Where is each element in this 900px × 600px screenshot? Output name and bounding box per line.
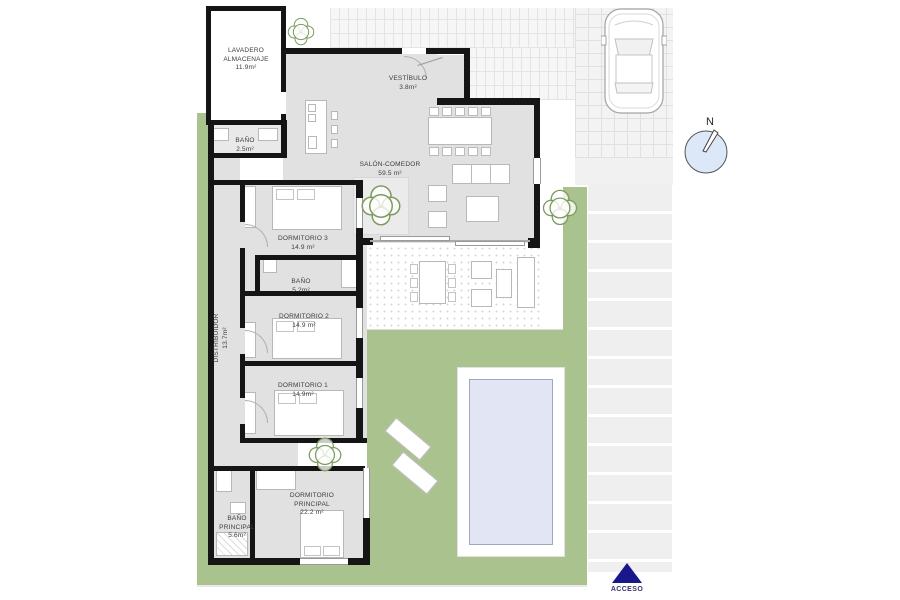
terrace-chair — [410, 264, 418, 274]
wall — [437, 98, 540, 105]
kitchen-hob — [308, 104, 316, 112]
kitchen-stool — [331, 125, 338, 134]
room-area: 11.9m² — [206, 64, 286, 73]
wall — [464, 48, 470, 105]
window — [356, 308, 363, 338]
access-label: ACCESO — [597, 586, 657, 593]
wall — [240, 361, 363, 366]
car-icon — [601, 5, 667, 117]
dining-chair — [468, 107, 478, 116]
compass-label-bind: N — [704, 114, 716, 126]
terrace-armchair — [471, 289, 492, 307]
room-area: 5.2m² — [266, 287, 336, 296]
driveway-stripes-top — [330, 8, 575, 48]
parking-pad-apron — [575, 158, 673, 185]
room-label-bano-1: BAÑO 2.5m² — [210, 128, 280, 163]
room-area: 3.8m² — [368, 84, 448, 93]
room-label-dormitorio-3: DORMITORIO 3 14.9 m² — [253, 226, 353, 261]
tree-icon — [538, 182, 582, 234]
room-area: 59.5 m² — [340, 170, 440, 179]
dining-chair-row — [429, 107, 499, 116]
dining-chair — [442, 147, 452, 156]
tree-icon — [356, 179, 406, 233]
garden-bottom-band — [214, 565, 364, 585]
terrace-edge — [367, 329, 563, 330]
terrace-armchair — [471, 261, 492, 279]
tree-icon — [302, 434, 348, 476]
dining-chair — [481, 147, 491, 156]
tree-icon — [284, 15, 318, 49]
kitchen-hob — [308, 114, 316, 122]
pillow — [304, 546, 321, 556]
room-name: DORMITORIO 3 — [278, 235, 328, 242]
window — [300, 558, 348, 565]
terrace-coffee-table — [496, 269, 512, 298]
bed-dormitorio-3 — [272, 186, 342, 230]
pillow — [297, 189, 315, 200]
dining-chair — [468, 147, 478, 156]
room-label-dormitorio-1: DORMITORIO 1 14.9m² — [253, 373, 353, 408]
floor-plan: N N ACCESO LAVADERO ALMACENAJE 11.9m² BA… — [0, 0, 900, 600]
window — [363, 468, 370, 518]
room-area: 14.9 m² — [253, 244, 353, 253]
dining-chair — [442, 107, 452, 116]
room-area: 13.7m² — [222, 327, 231, 348]
terrace-chair — [410, 278, 418, 288]
room-name: DORMITORIO PRINCIPAL — [290, 492, 334, 508]
room-name: BAÑO — [291, 278, 310, 285]
room-label-vestibulo: VESTÍBULO 3.8m² — [368, 66, 448, 101]
kitchen-sink — [308, 136, 317, 149]
terrace-chair-col — [410, 264, 418, 308]
pillow — [323, 546, 340, 556]
sofa — [452, 164, 510, 184]
dining-chair — [481, 107, 491, 116]
coffee-table — [466, 196, 499, 222]
access-arrow-icon — [612, 563, 642, 583]
room-name: DORMITORIO 1 — [278, 382, 328, 389]
wall — [206, 120, 286, 125]
room-name: DORMITORIO 2 — [279, 313, 329, 320]
armchair — [428, 185, 447, 202]
room-name: BAÑO PRINCIPAL — [219, 515, 255, 531]
kitchen-stool — [331, 139, 338, 148]
kitchen-stool — [331, 111, 338, 120]
room-area: 22.2 m² — [262, 509, 362, 518]
room-name: DISTRIBUIDOR — [213, 314, 222, 363]
room-name: BAÑO — [235, 137, 254, 144]
armchair — [428, 211, 447, 228]
sliding-door-panel — [380, 236, 450, 241]
terrace-chair — [410, 292, 418, 302]
dining-chair — [455, 147, 465, 156]
room-area: 5.6m² — [207, 532, 267, 541]
terrace-chair — [448, 264, 456, 274]
room-label-bano-2: BAÑO 5.2m² — [266, 269, 336, 304]
terrace-chair — [448, 278, 456, 288]
terraced-steps — [588, 185, 672, 572]
room-area: 14.9m² — [253, 391, 353, 400]
wall — [363, 518, 370, 565]
room-name: SALÓN-COMEDOR — [360, 161, 421, 168]
dining-chair — [455, 107, 465, 116]
wall — [281, 120, 287, 158]
sliding-door-panel — [455, 241, 525, 246]
pillow — [276, 189, 294, 200]
door-gap — [402, 48, 426, 54]
dining-chair — [429, 107, 439, 116]
room-name: LAVADERO ALMACENAJE — [223, 47, 268, 63]
terrace-sofa — [517, 257, 535, 308]
door-gap — [281, 92, 286, 114]
driveway-stripes-mid — [467, 48, 575, 100]
room-name: VESTÍBULO — [389, 75, 427, 82]
dining-table — [428, 117, 492, 145]
plot-boundary-line — [197, 585, 587, 587]
room-label-dormitorio-2: DORMITORIO 2 14.9 m² — [254, 304, 354, 339]
terrace-chair-col — [448, 264, 456, 308]
swimming-pool — [469, 379, 553, 545]
bath-fixture — [216, 470, 232, 492]
window — [356, 378, 363, 408]
room-label-bano-principal: BAÑO PRINCIPAL 5.6m² — [207, 506, 267, 550]
terrace-table — [419, 261, 446, 304]
terrace-chair — [448, 292, 456, 302]
room-area: 14.9 m² — [254, 322, 354, 331]
room-area: 2.5m² — [210, 146, 280, 155]
room-label-lavadero: LAVADERO ALMACENAJE 11.9m² — [206, 38, 286, 82]
room-label-distribuidor: DISTRIBUIDOR 13.7m² — [192, 307, 252, 369]
room-label-dormitorio-principal: DORMITORIO PRINCIPAL 22.2 m² — [262, 483, 362, 527]
room-label-salon-comedor: SALÓN-COMEDOR 59.5 m² — [340, 152, 440, 187]
window — [533, 158, 541, 184]
